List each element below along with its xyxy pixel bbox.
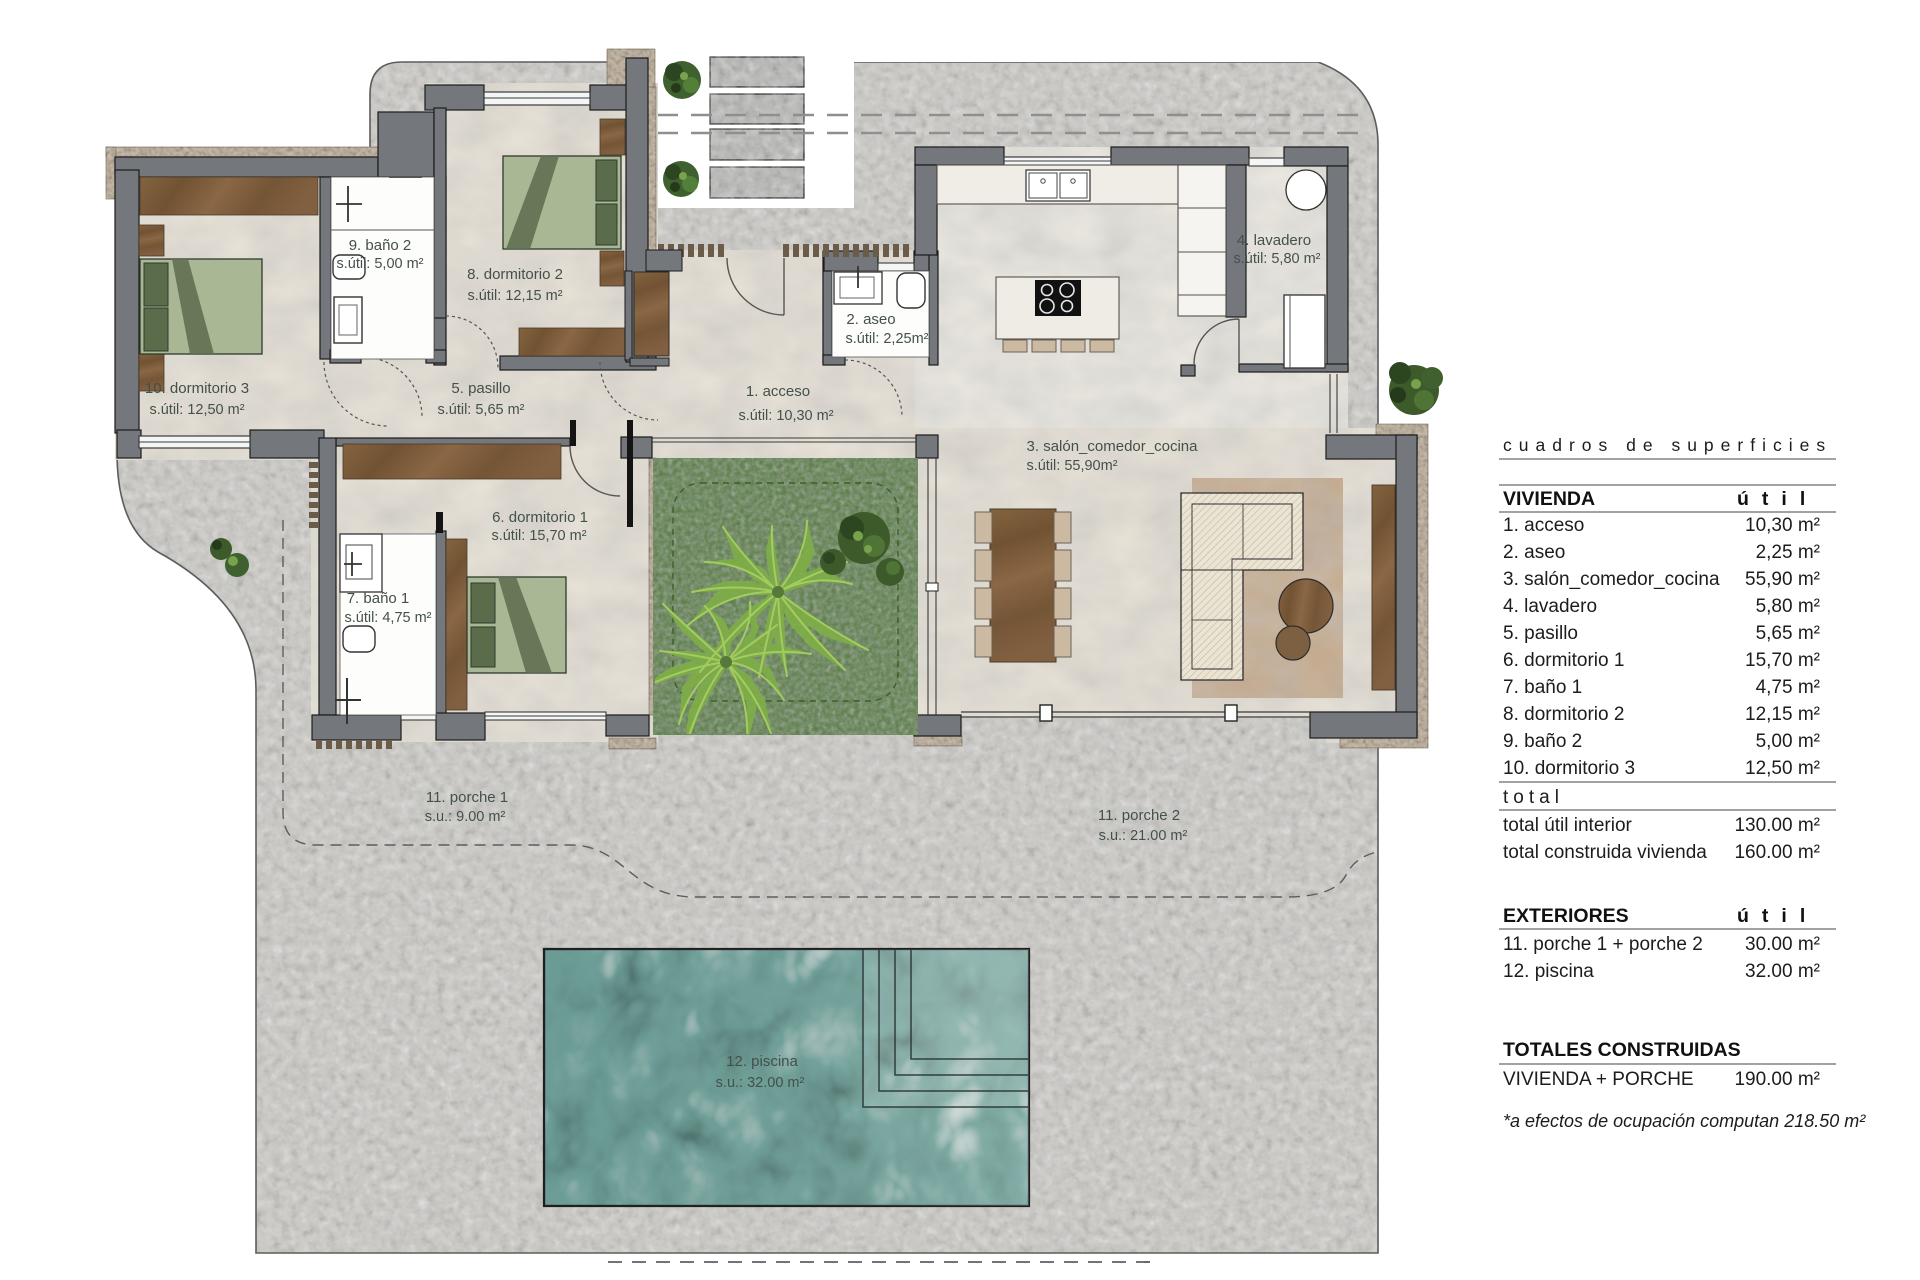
svg-text:32.00 m²: 32.00 m² xyxy=(1745,961,1820,982)
svg-text:160.00 m²: 160.00 m² xyxy=(1734,842,1820,863)
svg-text:s.útil: 5,65 m²: s.útil: 5,65 m² xyxy=(437,402,524,418)
svg-text:1. acceso: 1. acceso xyxy=(1503,515,1584,536)
svg-text:s.útil: 12,15 m²: s.útil: 12,15 m² xyxy=(467,288,562,304)
svg-text:10. dormitorio 3: 10. dormitorio 3 xyxy=(145,380,249,397)
svg-text:cuadros de superficies: cuadros de superficies xyxy=(1503,435,1832,455)
svg-text:10,30 m²: 10,30 m² xyxy=(1745,515,1820,536)
svg-text:5. pasillo: 5. pasillo xyxy=(1503,623,1578,644)
svg-text:útil: útil xyxy=(1737,905,1818,927)
svg-text:3. salón_comedor_cocina: 3. salón_comedor_cocina xyxy=(1027,438,1199,455)
svg-text:12,50 m²: 12,50 m² xyxy=(1745,758,1820,779)
svg-text:s.útil: 15,70 m²: s.útil: 15,70 m² xyxy=(491,528,586,544)
svg-text:s.útil: 4,75 m²: s.útil: 4,75 m² xyxy=(344,610,431,626)
svg-text:4. lavadero: 4. lavadero xyxy=(1503,596,1597,617)
svg-text:s.útil: 5,00 m²: s.útil: 5,00 m² xyxy=(336,256,423,272)
svg-text:15,70 m²: 15,70 m² xyxy=(1745,650,1820,671)
svg-text:11. porche 2: 11. porche 2 xyxy=(1098,807,1180,824)
svg-text:3. salón_comedor_cocina: 3. salón_comedor_cocina xyxy=(1503,569,1720,590)
svg-text:7. baño 1: 7. baño 1 xyxy=(1503,677,1582,698)
svg-text:9. baño 2: 9. baño 2 xyxy=(349,237,412,254)
svg-text:total: total xyxy=(1503,787,1564,808)
svg-text:6. dormitorio 1: 6. dormitorio 1 xyxy=(492,509,588,526)
svg-text:EXTERIORES: EXTERIORES xyxy=(1503,905,1629,927)
svg-text:*a efectos de ocupación comput: *a efectos de ocupación computan 218.50 … xyxy=(1503,1111,1866,1131)
svg-text:4,75 m²: 4,75 m² xyxy=(1756,677,1820,698)
svg-text:total útil interior: total útil interior xyxy=(1503,815,1633,836)
svg-text:130.00 m²: 130.00 m² xyxy=(1734,815,1820,836)
svg-text:total construida vivienda: total construida vivienda xyxy=(1503,842,1707,863)
svg-text:5,80 m²: 5,80 m² xyxy=(1756,596,1820,617)
svg-text:12. piscina: 12. piscina xyxy=(726,1053,798,1070)
svg-text:1. acceso: 1. acceso xyxy=(746,383,810,400)
svg-text:11. porche 1 + porche 2: 11. porche 1 + porche 2 xyxy=(1503,934,1703,955)
svg-text:10. dormitorio 3: 10. dormitorio 3 xyxy=(1503,758,1635,779)
svg-text:8. dormitorio 2: 8. dormitorio 2 xyxy=(1503,704,1624,725)
svg-text:s.u.: 32.00 m²: s.u.: 32.00 m² xyxy=(716,1075,805,1091)
svg-text:s.útil: 10,30 m²: s.útil: 10,30 m² xyxy=(738,408,833,424)
svg-text:12,15 m²: 12,15 m² xyxy=(1745,704,1820,725)
svg-text:s.útil: 5,80 m²: s.útil: 5,80 m² xyxy=(1233,251,1320,267)
svg-text:55,90 m²: 55,90 m² xyxy=(1745,569,1820,590)
svg-text:190.00 m²: 190.00 m² xyxy=(1734,1069,1820,1090)
svg-text:s.útil: 55,90m²: s.útil: 55,90m² xyxy=(1026,458,1117,474)
svg-text:TOTALES CONSTRUIDAS: TOTALES CONSTRUIDAS xyxy=(1503,1039,1741,1061)
svg-text:s.u.: 21.00 m²: s.u.: 21.00 m² xyxy=(1099,828,1188,844)
svg-text:30.00 m²: 30.00 m² xyxy=(1745,934,1820,955)
svg-text:s.útil: 2,25m²: s.útil: 2,25m² xyxy=(846,331,929,347)
svg-text:s.útil: 12,50 m²: s.útil: 12,50 m² xyxy=(149,402,244,418)
svg-text:7. baño 1: 7. baño 1 xyxy=(347,590,410,607)
svg-text:2. aseo: 2. aseo xyxy=(1503,542,1565,563)
svg-text:11. porche 1: 11. porche 1 xyxy=(426,789,508,806)
svg-text:5,00 m²: 5,00 m² xyxy=(1756,731,1820,752)
svg-text:8. dormitorio 2: 8. dormitorio 2 xyxy=(467,266,563,283)
svg-text:útil: útil xyxy=(1737,488,1818,510)
svg-text:2,25 m²: 2,25 m² xyxy=(1756,542,1820,563)
svg-text:12. piscina: 12. piscina xyxy=(1503,961,1594,982)
svg-text:5. pasillo: 5. pasillo xyxy=(451,380,510,397)
svg-text:6. dormitorio 1: 6. dormitorio 1 xyxy=(1503,650,1624,671)
svg-text:9. baño 2: 9. baño 2 xyxy=(1503,731,1582,752)
svg-text:5,65 m²: 5,65 m² xyxy=(1756,623,1820,644)
svg-text:VIVIENDA: VIVIENDA xyxy=(1503,488,1595,510)
svg-text:s.u.: 9.00 m²: s.u.: 9.00 m² xyxy=(425,809,506,825)
svg-text:2. aseo: 2. aseo xyxy=(846,311,895,328)
svg-text:4. lavadero: 4. lavadero xyxy=(1237,232,1311,249)
svg-text:VIVIENDA + PORCHE: VIVIENDA + PORCHE xyxy=(1503,1069,1694,1090)
